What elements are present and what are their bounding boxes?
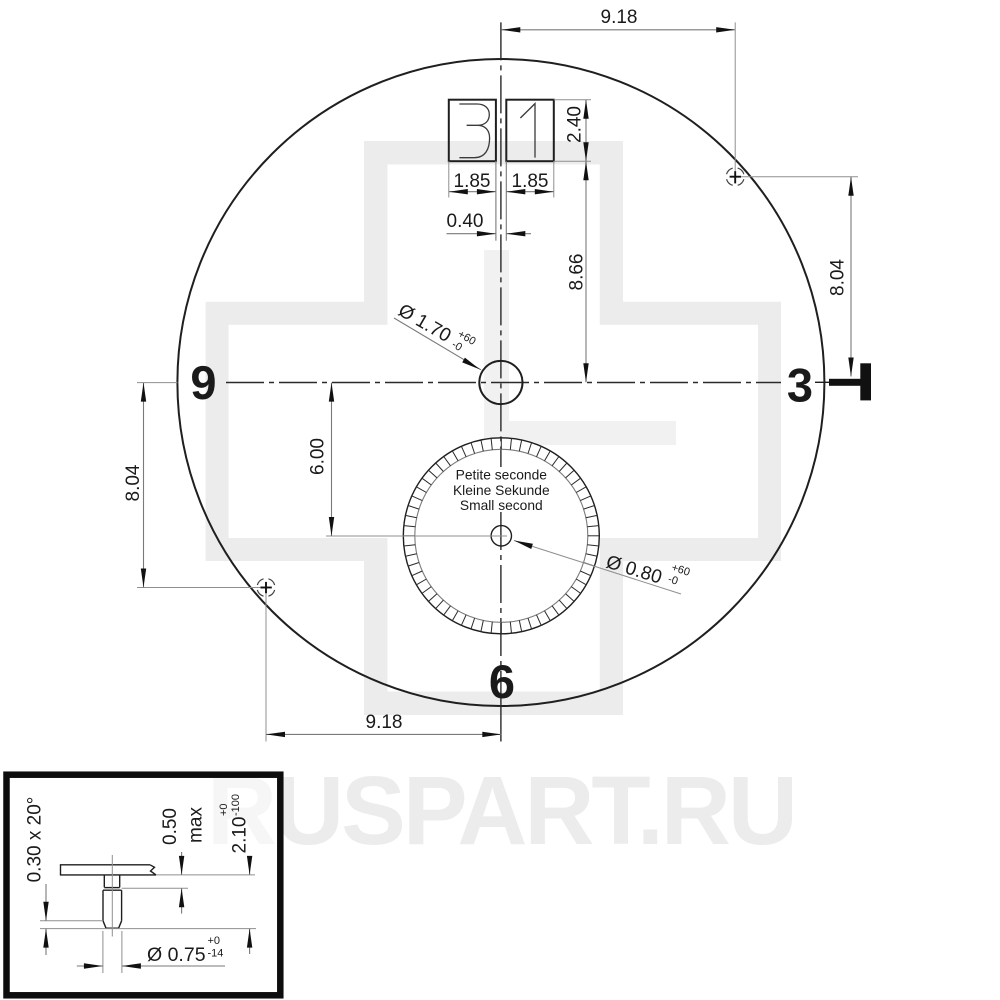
svg-text:1.85: 1.85 bbox=[454, 171, 491, 192]
svg-text:8.66: 8.66 bbox=[567, 254, 588, 291]
svg-text:3: 3 bbox=[787, 359, 813, 412]
svg-text:9.18: 9.18 bbox=[366, 712, 403, 733]
svg-text:0.40: 0.40 bbox=[447, 211, 484, 232]
svg-text:0.30 x 20°: 0.30 x 20° bbox=[25, 797, 46, 883]
svg-text:Petite seconde: Petite seconde bbox=[456, 468, 548, 483]
svg-text:6: 6 bbox=[489, 655, 515, 708]
svg-text:+0: +0 bbox=[218, 803, 230, 816]
svg-text:9.18: 9.18 bbox=[601, 7, 638, 28]
svg-text:RUSPART.RU: RUSPART.RU bbox=[207, 756, 795, 865]
svg-text:0.50: 0.50 bbox=[160, 808, 181, 845]
svg-text:Ø 0.75: Ø 0.75 bbox=[147, 944, 206, 966]
svg-text:9: 9 bbox=[190, 356, 216, 409]
svg-text:2.10: 2.10 bbox=[230, 817, 251, 854]
svg-text:6.00: 6.00 bbox=[308, 438, 329, 475]
svg-text:8.04: 8.04 bbox=[123, 464, 144, 501]
svg-text:1.85: 1.85 bbox=[512, 171, 549, 192]
svg-text:2.40: 2.40 bbox=[565, 106, 586, 143]
svg-text:Kleine Sekunde: Kleine Sekunde bbox=[453, 483, 550, 498]
svg-text:8.04: 8.04 bbox=[828, 259, 849, 296]
svg-text:+0: +0 bbox=[208, 935, 221, 947]
svg-text:-100: -100 bbox=[230, 794, 242, 816]
svg-text:max: max bbox=[186, 807, 207, 843]
svg-text:-14: -14 bbox=[208, 948, 224, 960]
svg-text:Small second: Small second bbox=[460, 498, 543, 513]
